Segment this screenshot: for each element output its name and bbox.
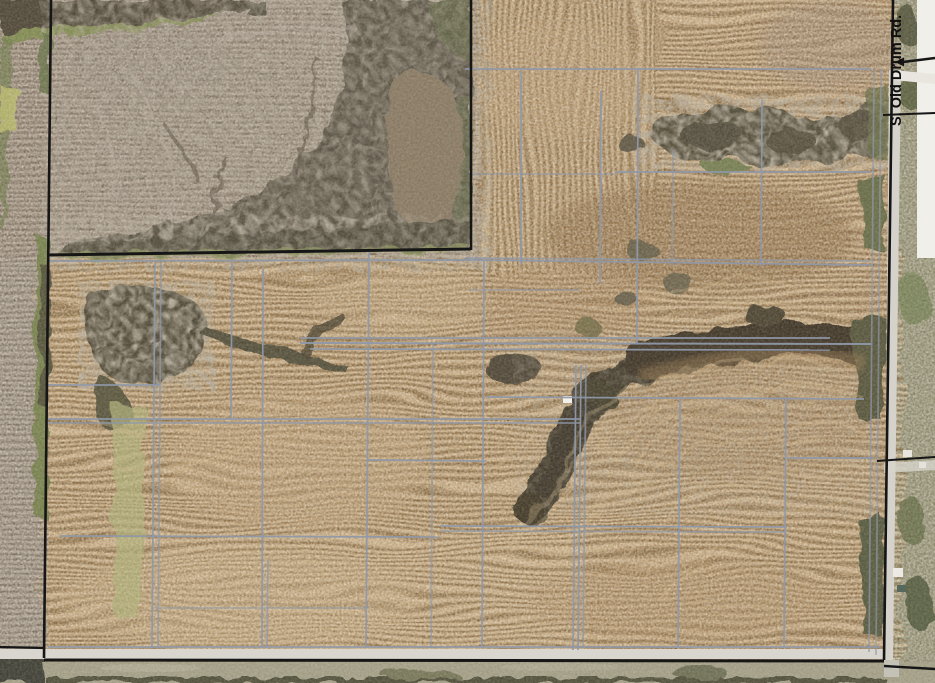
svg-text:S. Old Drum Rd.: S. Old Drum Rd.: [889, 15, 905, 126]
